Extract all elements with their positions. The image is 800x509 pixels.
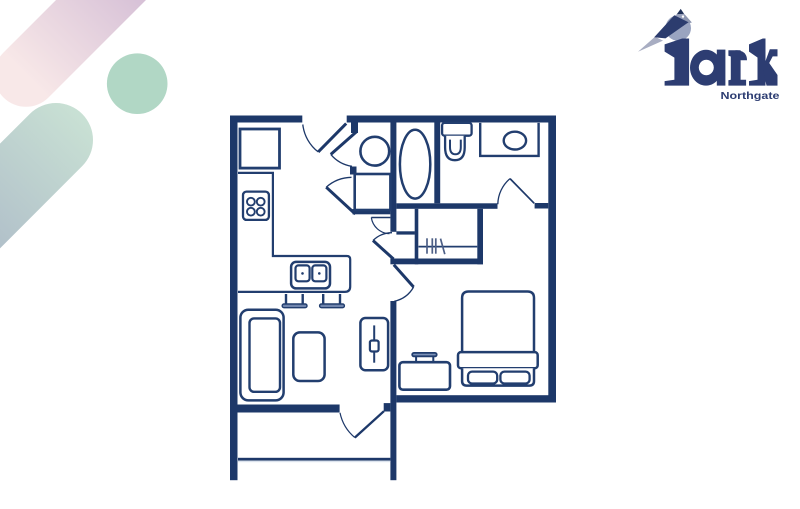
svg-text:Northgate: Northgate	[721, 91, 781, 102]
